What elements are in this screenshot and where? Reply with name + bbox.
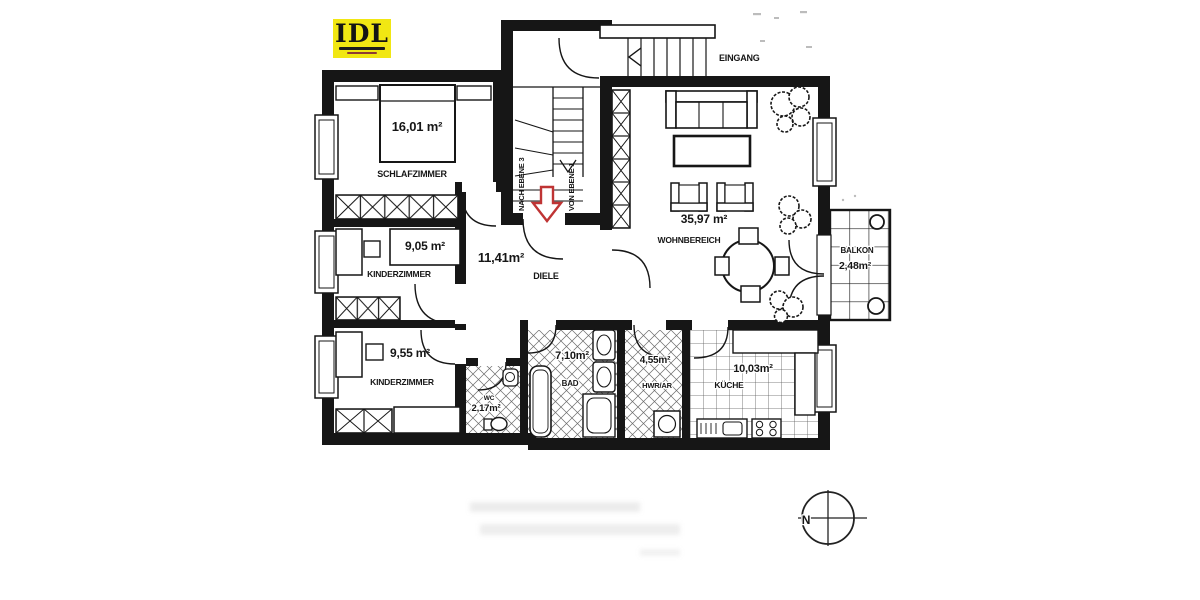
room-schlafzimmer: 16,01 m² SCHLAFZIMMER [336, 85, 491, 219]
stairs-up-label: NACH EBENE 3 [517, 158, 526, 211]
wall-wc-top [506, 358, 520, 366]
kinderzimmer-unten-name: KINDERZIMMER [370, 377, 434, 387]
wall-top-right-wing [600, 76, 830, 87]
plant-icon [771, 87, 810, 132]
door-entry [559, 38, 599, 78]
stairwell: NACH EBENE 3 VON EBENE 1 [513, 87, 600, 211]
hwr-area: 4,55m² [640, 355, 671, 366]
wall-sz-nook [455, 182, 462, 192]
stove [752, 419, 781, 438]
schlafzimmer-name: SCHLAFZIMMER [377, 169, 447, 179]
wall-bottom-right-wing [528, 438, 830, 450]
wall-wc-top [466, 358, 478, 366]
wardrobe [336, 195, 458, 219]
wall-bedrooms-east [455, 324, 466, 330]
wall-schlafzimmer-east [493, 82, 513, 182]
wall-stair-south [501, 213, 523, 225]
eingang-label: EINGANG [719, 53, 760, 63]
dining-table [722, 240, 774, 292]
diele-name: DIELE [533, 271, 559, 281]
room-wohnbereich: 35,97 m² WOHNBEREICH [612, 87, 811, 323]
sofa [666, 91, 757, 128]
window-kinderzimmer-unten [315, 336, 338, 398]
bad-area: 7,10m² [555, 350, 589, 362]
washing-machine [654, 411, 680, 437]
wall-hwr-kueche [682, 320, 690, 445]
wc-name: WC [484, 395, 495, 402]
bed [336, 332, 362, 377]
wohnbereich-area: 35,97 m² [681, 212, 728, 226]
sink [593, 362, 615, 392]
kinderzimmer-oben-area: 9,05 m² [405, 239, 445, 253]
door-kinderzimmer-oben [415, 284, 455, 324]
floorplan-page: IDL [0, 0, 1200, 600]
counter [733, 330, 818, 353]
wall-stair-south [565, 213, 612, 225]
bad-name: BAD [562, 379, 579, 388]
wc-area: 2,17m² [472, 403, 501, 414]
compass: N [798, 490, 867, 546]
sink [593, 330, 615, 360]
shelf [457, 86, 491, 100]
wall-bottom-left-wing [322, 433, 536, 445]
wall-bad-hwr [617, 320, 625, 445]
wall-stairwell-top [501, 20, 612, 31]
shower [583, 394, 615, 437]
wardrobe [336, 409, 392, 433]
stairs-down-label: VON EBENE 1 [567, 163, 576, 211]
door-stairwell [523, 219, 563, 259]
compass-north-label: N [802, 513, 810, 527]
armchair [671, 183, 707, 211]
coffee-table [674, 136, 750, 166]
entry-direction-arrow-icon [629, 48, 641, 66]
balkon-name: BALKON [840, 246, 873, 255]
balkon-planter-icon [870, 215, 884, 229]
wall-wohnbereich-west [600, 80, 612, 230]
balkon-area: 2,48m² [839, 260, 872, 272]
counter [795, 353, 815, 415]
wall-top-left-wing [322, 70, 513, 82]
room-kinderzimmer-unten: 9,55 m² KINDERZIMMER [336, 332, 460, 433]
window-schlafzimmer [315, 115, 338, 179]
wohnbereich-name: WOHNBEREICH [658, 235, 721, 245]
dresser [394, 407, 460, 433]
kueche-area: 10,03m² [733, 363, 773, 375]
room-kinderzimmer-oben: 9,05 m² KINDERZIMMER [336, 229, 460, 320]
entrance: EINGANG [600, 25, 760, 76]
hwr-name: HWR/AR [642, 381, 672, 390]
desk [336, 229, 362, 275]
balkon: BALKON 2,48m² [830, 210, 890, 320]
chair [364, 241, 380, 257]
kueche-name: KÜCHE [714, 380, 744, 390]
toilet [484, 418, 507, 431]
door-schlafzimmer [462, 192, 496, 226]
entry-landing [600, 25, 715, 38]
plant-icon [770, 291, 803, 323]
wall-wc-bad [520, 320, 528, 445]
balkon-planter-icon [868, 298, 884, 314]
red-down-arrow-icon [533, 187, 561, 221]
diele-area: 11,41m² [478, 250, 525, 265]
window-wohnbereich [813, 118, 836, 186]
kitchen-sink-unit [697, 419, 747, 438]
kinderzimmer-oben-name: KINDERZIMMER [367, 269, 431, 279]
corner-sink [503, 369, 518, 386]
balcony-door-frame [817, 235, 831, 315]
kinderzimmer-unten-area: 9,55 m² [390, 346, 430, 360]
door-wohnbereich [612, 250, 650, 288]
wardrobe [336, 297, 400, 320]
chair [366, 344, 383, 360]
floorplan-drawing: BALKON 2,48m² [0, 0, 1200, 600]
wall-rooms-top [728, 320, 818, 330]
cabinet [612, 90, 630, 228]
schlafzimmer-area: 16,01 m² [392, 119, 443, 134]
armchair [717, 183, 753, 211]
room-diele: 11,41m² DIELE [478, 250, 559, 281]
wall-sz-kz1 [334, 219, 455, 227]
entry-steps [628, 38, 706, 76]
plant-icon [779, 196, 811, 234]
window-kueche [813, 345, 836, 412]
window-kinderzimmer-oben [315, 231, 338, 293]
shelf [336, 86, 378, 100]
